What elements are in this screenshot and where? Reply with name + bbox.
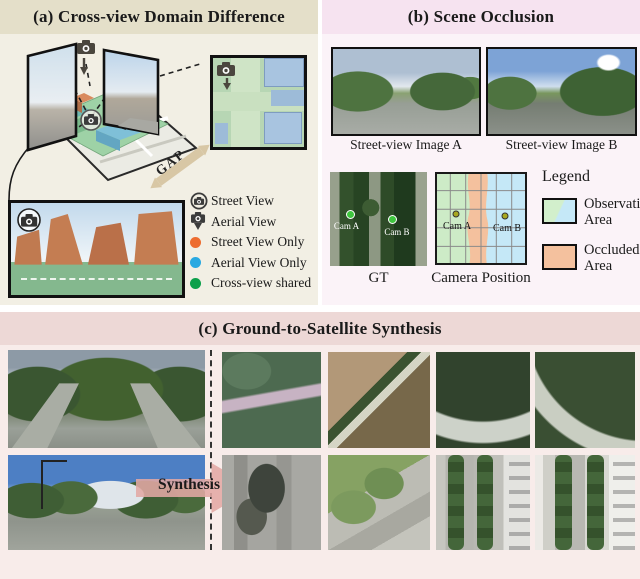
panel-c-body: Synthesis Street-view Image SelectionGAN… [0, 345, 640, 579]
panel-a-title: (a) Cross-view Domain Difference [0, 0, 318, 34]
road-markings [21, 278, 172, 280]
panel-a-cross-view-domain-difference: (a) Cross-view Domain Difference [0, 0, 318, 305]
panel-c-title: (c) Ground-to-Satellite Synthesis [0, 312, 640, 345]
top-camera-icon [77, 40, 95, 75]
figure-root: (a) Cross-view Domain Difference [0, 0, 640, 579]
legend-title: Legend [542, 168, 637, 186]
aerial-building [215, 123, 229, 144]
street-view-panorama-forest [8, 350, 205, 448]
tree-row [448, 455, 464, 550]
instr-p2p-result-forest [328, 352, 430, 448]
gt-aerial-image: Cam A Cam B [330, 172, 427, 266]
selectiongan-result-urban [222, 455, 321, 550]
lamp-post [41, 460, 43, 509]
cam-b-grid-dot [502, 213, 508, 219]
street-view-image-b-label: Street-view Image B [486, 137, 637, 153]
orange-dot-icon [190, 237, 201, 248]
aerial-building [264, 112, 302, 144]
gt-label: GT [330, 270, 427, 287]
cam-a-tag: Cam A [334, 221, 359, 231]
street-view-image-a [331, 47, 481, 136]
building-shape [88, 220, 129, 264]
legend-item-street-view: Street View [190, 191, 316, 212]
gt-satellite-forest [535, 352, 635, 448]
building-shape [14, 230, 41, 265]
ours-result-forest [436, 352, 530, 448]
cam-a-grid-tag: Cam A [443, 221, 472, 232]
panel-b-legend: Legend Observation Area Occluded Area [542, 168, 637, 288]
green-dot-icon [190, 278, 201, 289]
street-view-panorama-urban [8, 455, 205, 550]
aerial-building [264, 58, 304, 87]
panel-b-title: (b) Scene Occlusion [322, 0, 640, 34]
legend-item-street-only: Street View Only [190, 232, 316, 253]
selectiongan-result-forest [222, 352, 321, 448]
aerial-view-image [210, 55, 307, 150]
tree-row [555, 455, 572, 550]
building-shape [134, 211, 178, 264]
building-roofs [509, 455, 530, 550]
panel-c-ground-to-satellite-synthesis: (c) Ground-to-Satellite Synthesis Synthe… [0, 305, 640, 579]
panorama-camera-icon [16, 207, 42, 233]
street-view-panorama [8, 200, 185, 298]
gt-satellite-urban [535, 455, 635, 550]
cam-a-grid-dot [453, 211, 459, 217]
cam-b-dot [388, 215, 397, 224]
tree-row [587, 455, 604, 550]
blue-dot-icon [190, 257, 201, 268]
street-view-camera-icon [190, 192, 211, 210]
camera-position-label: Camera Position [420, 270, 542, 287]
legend-item-aerial-only: Aerial View Only [190, 253, 316, 274]
street-photo-left [28, 44, 76, 150]
legend-item-occluded: Occluded Area [542, 242, 637, 274]
aerial-building [271, 90, 304, 106]
observation-area-swatch [542, 198, 577, 224]
street-view-image-b [486, 47, 637, 136]
camera-icon [217, 62, 235, 76]
street-view-image-a-label: Street-view Image A [331, 137, 481, 153]
instr-p2p-result-urban [328, 455, 430, 550]
down-arrow-icon [222, 78, 232, 90]
cam-b-tag: Cam B [384, 227, 409, 237]
building-shape [45, 214, 83, 265]
tree-row [477, 455, 493, 550]
ground-camera-icon [81, 110, 101, 130]
legend-item-aerial-view: Aerial View [190, 212, 316, 233]
ours-result-urban [436, 455, 530, 550]
cam-b-grid-tag: Cam B [493, 223, 521, 234]
occluded-area-swatch [542, 244, 577, 270]
panel-a-legend: Street View Aerial View Street View Only… [190, 191, 316, 294]
camera-position-diagram: Cam A Cam B [435, 172, 527, 265]
legend-item-cross-view-shared: Cross-view shared [190, 273, 316, 294]
panel-b-scene-occlusion: (b) Scene Occlusion Street-view Image A … [322, 0, 640, 305]
aerial-view-camera-icon [190, 212, 211, 231]
legend-item-observation: Observation Area [542, 196, 637, 228]
cam-a-dot [346, 210, 355, 219]
connector-line [9, 146, 30, 200]
dashed-divider [210, 350, 212, 550]
building-roofs [613, 455, 635, 550]
